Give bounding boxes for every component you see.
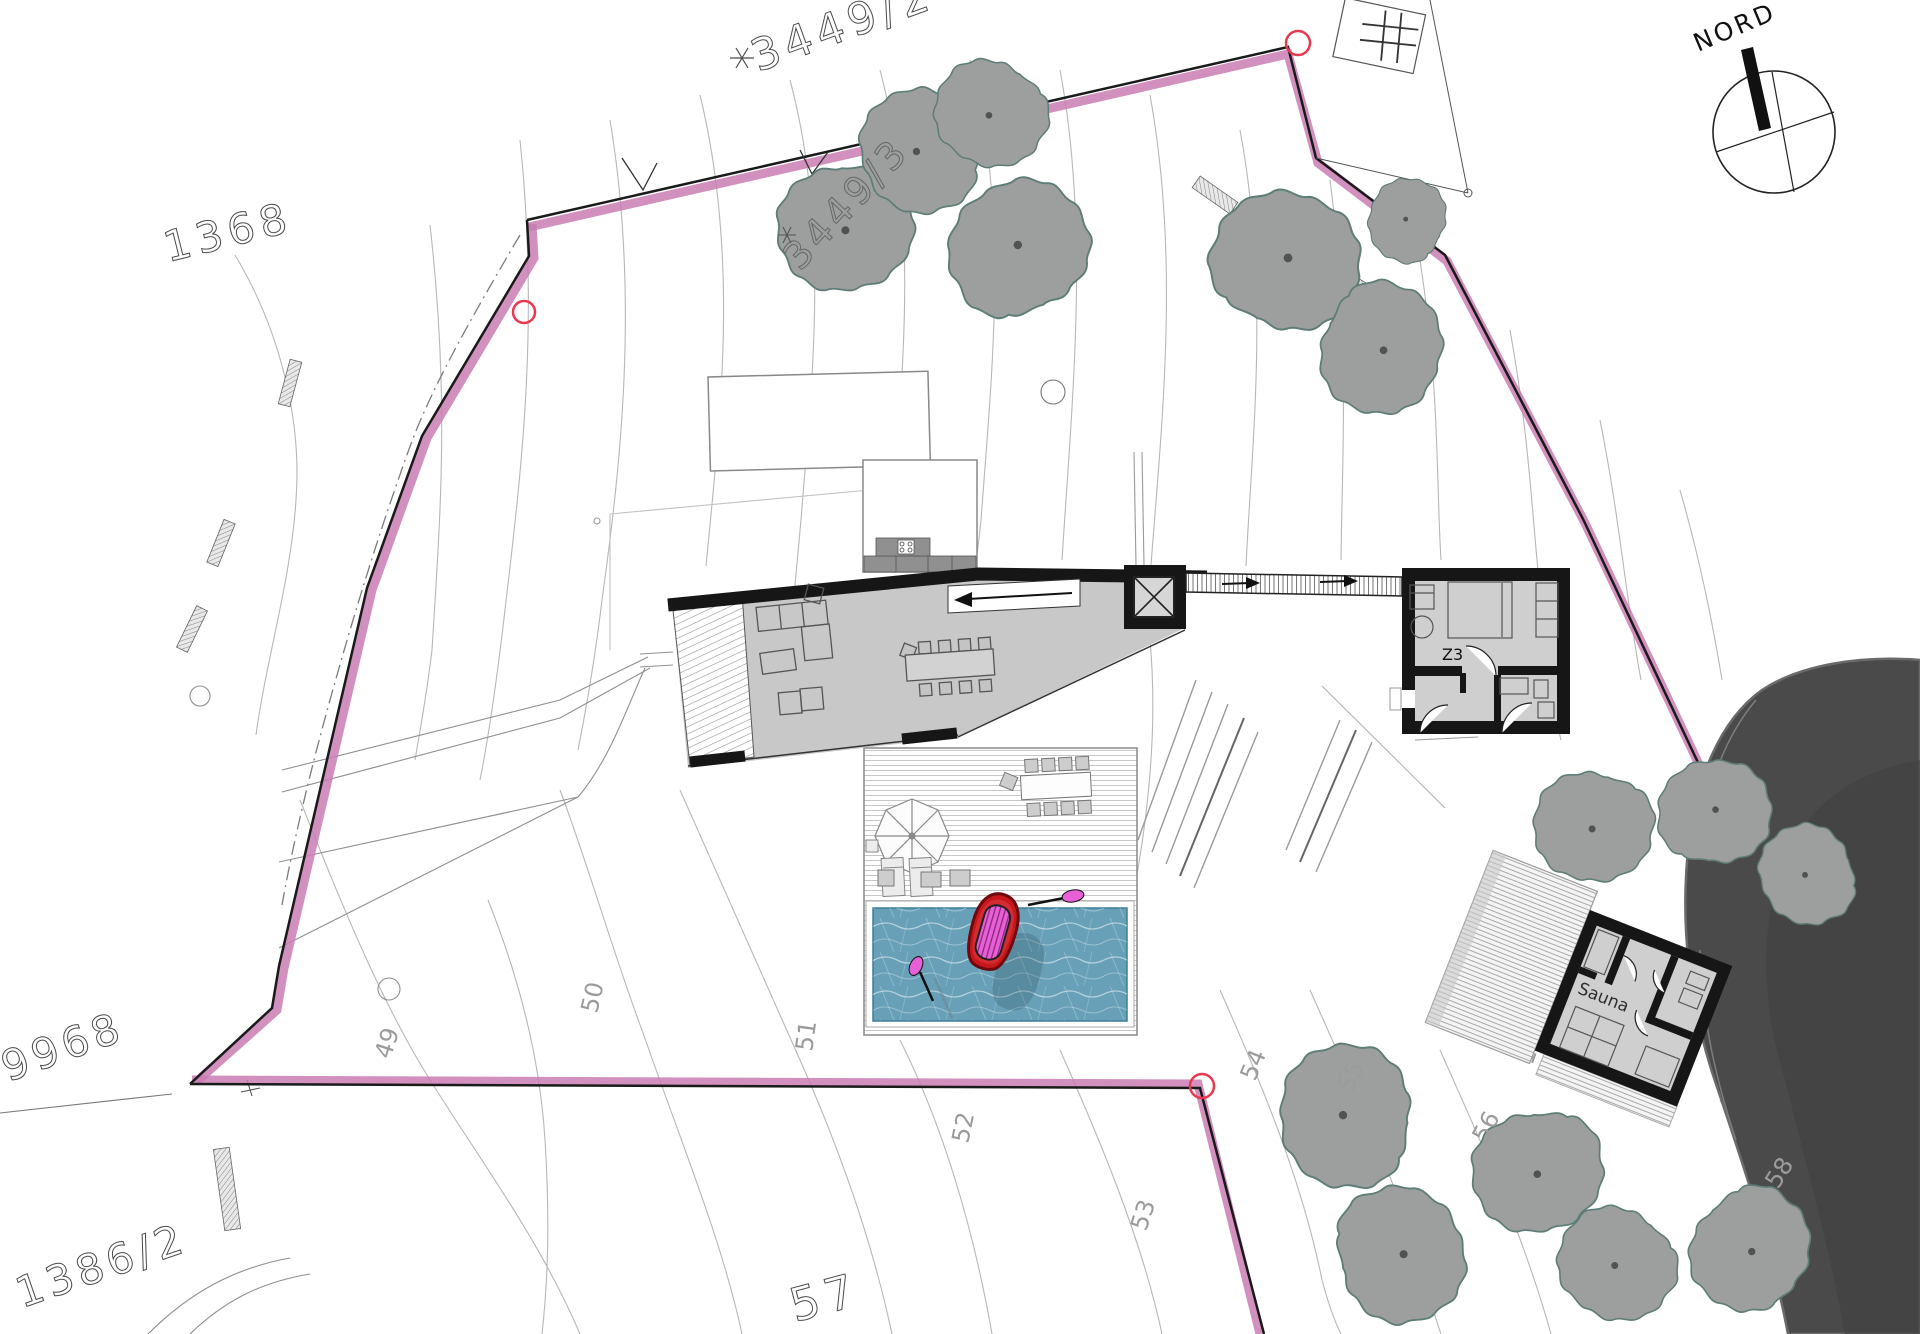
parcel-label-57: 57 (784, 1262, 866, 1332)
contour-label-51: 51 (790, 1019, 822, 1053)
dining-table (905, 649, 995, 681)
boundary-pink-band-left (196, 224, 534, 1082)
guesthouse-z3: Z3 (1390, 568, 1570, 734)
parcel-label-9968: 9968 (0, 1002, 131, 1091)
boundary-line-bottom (190, 1084, 1264, 1334)
survey-point-circle-west (513, 301, 535, 323)
contour-label-50: 50 (576, 979, 610, 1015)
terrace-step-lines (1138, 680, 1445, 888)
contour-label-54: 54 (1235, 1045, 1272, 1084)
roof-rect-upper (708, 371, 930, 471)
house-deck-hatched (672, 594, 754, 766)
boundary-tick-v1 (622, 158, 657, 190)
z3-label: Z3 (1442, 645, 1463, 664)
boundary-pink-band-bottom (192, 1080, 1260, 1334)
parcel-label-3449-2: 3449/2 (744, 0, 941, 82)
contour-label-49: 49 (369, 1024, 405, 1062)
pool-terrace (864, 748, 1137, 1035)
poolside-chairs (878, 870, 970, 887)
deck-table (1020, 772, 1091, 800)
tree-icon (1328, 1175, 1474, 1333)
bridge-walkway (1186, 573, 1402, 596)
site-plan-drawing: 3449/2 3449/3 1368 9968 1386/2 57 49 50 … (0, 0, 1920, 1334)
kitchen-island (876, 538, 930, 556)
parcel-label-1368: 1368 (159, 192, 298, 271)
main-house (668, 565, 1207, 768)
neighbour-structure-hash (1333, 0, 1426, 74)
cooktop-icon (898, 540, 914, 554)
parcel-label-1386-2: 1386/2 (9, 1213, 193, 1317)
survey-point-circle-north (1286, 31, 1310, 55)
x-box (1124, 565, 1186, 629)
site-plan: 3449/2 3449/3 1368 9968 1386/2 57 49 50 … (0, 0, 1920, 1334)
north-label: NORD (1689, 0, 1780, 58)
contour-label-53: 53 (1125, 1196, 1161, 1234)
roof-outlines (708, 371, 977, 572)
north-compass: NORD (1689, 0, 1835, 193)
contour-label-52: 52 (946, 1110, 980, 1146)
